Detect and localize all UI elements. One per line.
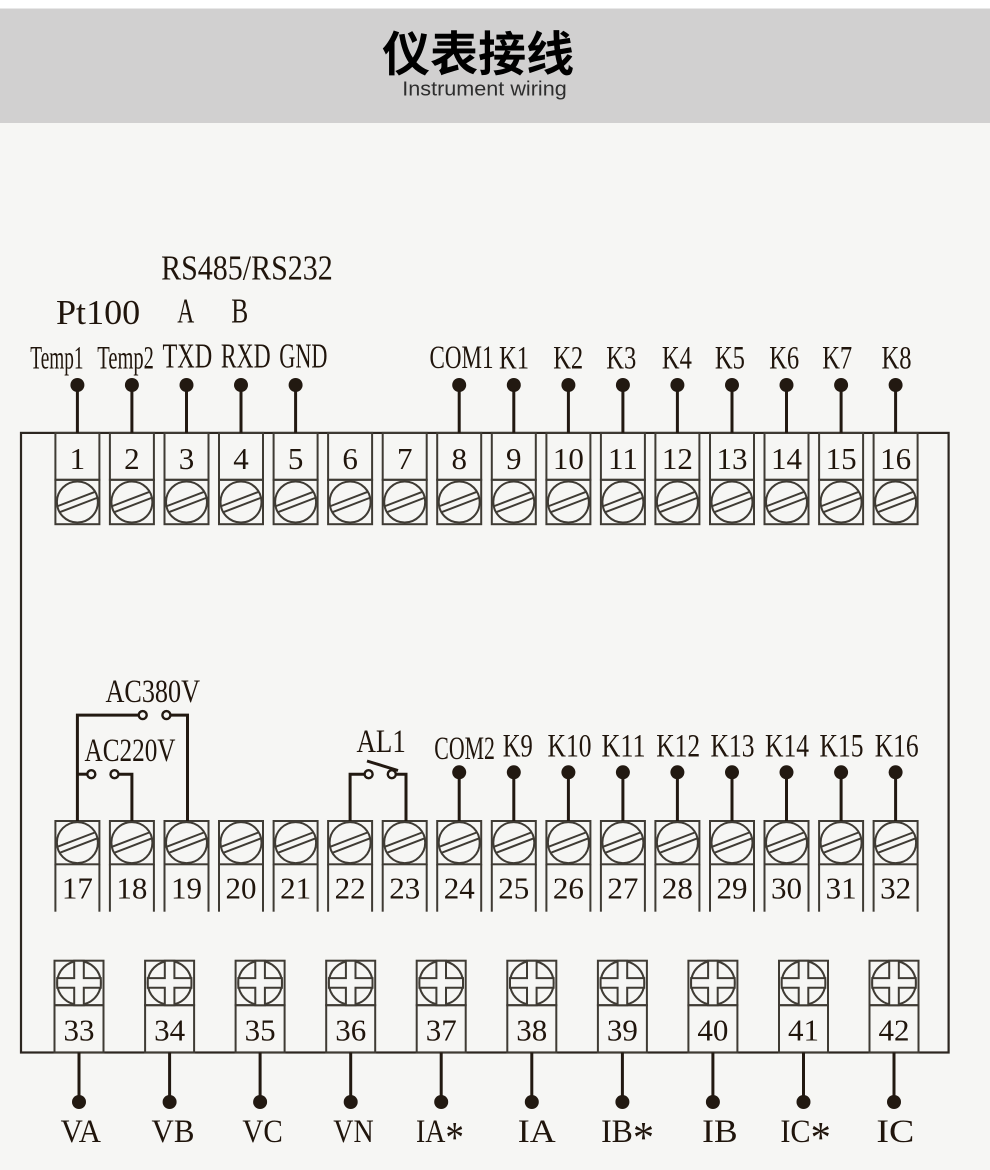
- svg-text:AC380V: AC380V: [106, 674, 201, 710]
- svg-text:K7: K7: [822, 341, 852, 377]
- svg-text:K1: K1: [499, 341, 529, 377]
- svg-text:41: 41: [788, 1013, 819, 1048]
- svg-text:18: 18: [116, 871, 147, 906]
- svg-text:K2: K2: [553, 341, 583, 377]
- svg-text:K13: K13: [711, 729, 755, 765]
- svg-text:27: 27: [607, 871, 638, 906]
- svg-text:IC: IC: [876, 1114, 914, 1150]
- svg-text:1: 1: [70, 441, 86, 476]
- svg-text:IA: IA: [518, 1114, 556, 1150]
- svg-text:12: 12: [662, 441, 693, 476]
- svg-text:32: 32: [880, 871, 911, 906]
- svg-text:RXD: RXD: [221, 337, 271, 376]
- svg-text:GND: GND: [279, 337, 327, 376]
- svg-text:6: 6: [342, 441, 358, 476]
- svg-text:Instrument wiring: Instrument wiring: [402, 79, 567, 101]
- svg-text:5: 5: [288, 441, 304, 476]
- svg-text:K10: K10: [548, 729, 592, 765]
- svg-text:RS485/RS232: RS485/RS232: [161, 248, 333, 287]
- svg-text:AC220V: AC220V: [85, 733, 176, 769]
- svg-text:B: B: [231, 291, 248, 330]
- svg-text:21: 21: [280, 871, 311, 906]
- svg-text:VC: VC: [242, 1114, 282, 1150]
- svg-text:38: 38: [516, 1013, 547, 1048]
- svg-text:40: 40: [697, 1013, 728, 1048]
- svg-text:K12: K12: [656, 729, 700, 765]
- svg-text:K5: K5: [715, 341, 745, 377]
- svg-text:IB: IB: [702, 1114, 737, 1150]
- svg-text:20: 20: [226, 871, 257, 906]
- svg-text:2: 2: [124, 441, 140, 476]
- svg-text:39: 39: [607, 1013, 638, 1048]
- svg-text:K8: K8: [882, 341, 912, 377]
- svg-text:COM2: COM2: [434, 731, 495, 767]
- svg-text:36: 36: [335, 1013, 366, 1048]
- svg-text:Pt100: Pt100: [56, 293, 140, 332]
- svg-text:VA: VA: [61, 1114, 102, 1150]
- svg-text:24: 24: [444, 871, 476, 906]
- svg-text:7: 7: [397, 441, 413, 476]
- svg-text:10: 10: [553, 441, 584, 476]
- svg-text:33: 33: [64, 1013, 95, 1048]
- svg-text:42: 42: [879, 1013, 910, 1048]
- svg-text:28: 28: [662, 871, 693, 906]
- svg-text:14: 14: [771, 441, 803, 476]
- svg-text:37: 37: [426, 1013, 457, 1048]
- svg-text:Temp1: Temp1: [30, 341, 83, 377]
- svg-text:K4: K4: [662, 341, 692, 377]
- svg-text:25: 25: [498, 871, 529, 906]
- svg-text:11: 11: [608, 441, 638, 476]
- svg-text:4: 4: [233, 441, 249, 476]
- svg-text:30: 30: [771, 871, 802, 906]
- svg-text:15: 15: [826, 441, 857, 476]
- svg-text:9: 9: [506, 441, 522, 476]
- svg-text:8: 8: [451, 441, 467, 476]
- svg-text:19: 19: [171, 871, 202, 906]
- svg-text:K11: K11: [602, 729, 646, 765]
- svg-text:3: 3: [179, 441, 195, 476]
- svg-text:K16: K16: [875, 729, 919, 765]
- svg-text:16: 16: [880, 441, 911, 476]
- svg-text:31: 31: [826, 871, 857, 906]
- svg-text:TXD: TXD: [163, 337, 213, 376]
- svg-text:A: A: [177, 291, 194, 330]
- svg-text:K9: K9: [503, 729, 533, 765]
- svg-text:AL1: AL1: [357, 724, 406, 760]
- svg-text:K15: K15: [820, 729, 864, 765]
- svg-text:COM1: COM1: [430, 340, 494, 376]
- svg-text:K3: K3: [606, 341, 636, 377]
- svg-text:Temp2: Temp2: [97, 341, 154, 377]
- svg-text:23: 23: [389, 871, 420, 906]
- svg-text:VB: VB: [152, 1114, 195, 1150]
- svg-text:K14: K14: [765, 729, 809, 765]
- svg-text:13: 13: [717, 441, 748, 476]
- svg-text:35: 35: [245, 1013, 276, 1048]
- svg-text:K6: K6: [769, 341, 799, 377]
- svg-text:VN: VN: [333, 1114, 374, 1150]
- svg-text:17: 17: [62, 871, 93, 906]
- svg-text:34: 34: [154, 1013, 186, 1048]
- svg-text:22: 22: [335, 871, 366, 906]
- svg-text:26: 26: [553, 871, 584, 906]
- svg-text:29: 29: [717, 871, 748, 906]
